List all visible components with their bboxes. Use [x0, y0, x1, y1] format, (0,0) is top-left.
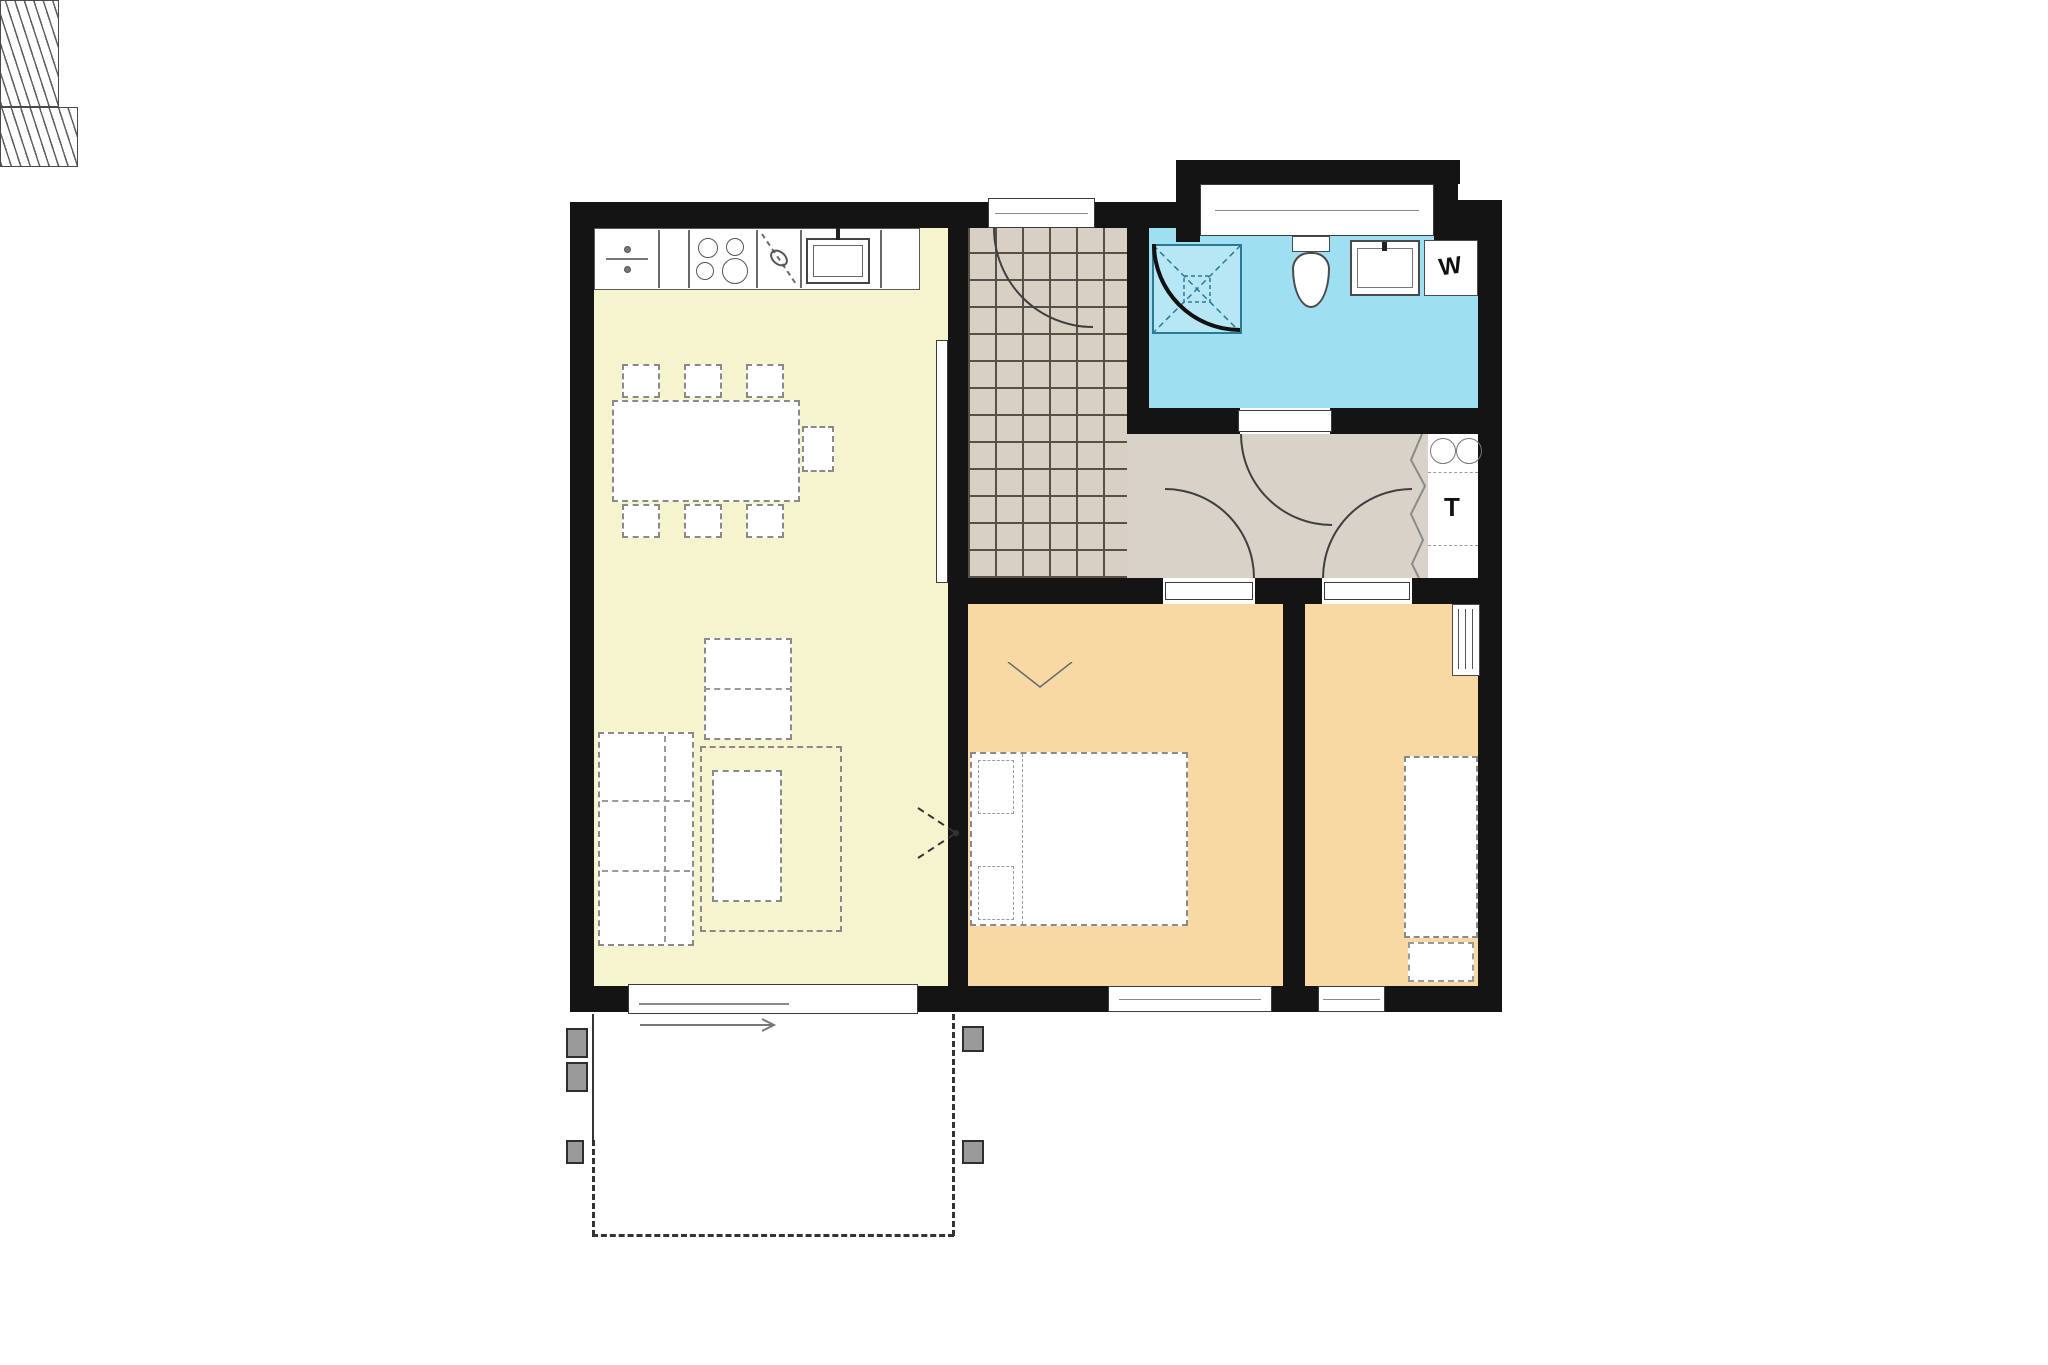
single-bed-nightstand: [1408, 942, 1474, 982]
kitchen-counter-divider-1: [658, 230, 660, 288]
wall-bottom-c: [1272, 986, 1318, 1012]
washing-machine: W: [1424, 240, 1478, 296]
terrace-post-4: [962, 1026, 984, 1052]
terrace-edge-left-solid: [592, 1014, 594, 1140]
wall-top-right-corner: [1434, 200, 1502, 242]
bedroom-1-wardrobe: [0, 107, 78, 167]
dishwasher-dot-bottom: [624, 266, 631, 273]
cooktop-burner-2: [726, 238, 744, 256]
dining-chair-3: [746, 364, 784, 398]
dining-chair-7: [802, 426, 834, 472]
bedrooms-top-wall-a: [948, 578, 1163, 604]
coffee-table: [712, 770, 782, 902]
wall-bottom-b: [918, 986, 1108, 1012]
sliding-door-direction-arrow: [640, 1018, 780, 1032]
bedroom-2-radiator: [1452, 604, 1480, 676]
radiator-line-1: [1458, 609, 1459, 669]
dishwasher-dot-top: [624, 246, 631, 253]
wall-top-a: [570, 202, 990, 228]
terrace-post-2: [566, 1062, 588, 1092]
double-bed-headboard-line: [1022, 754, 1023, 924]
terrace-edge-right: [952, 1014, 955, 1236]
bay-window: [1200, 184, 1434, 236]
bedrooms-top-wall-c: [1412, 578, 1502, 604]
wall-bottom-a: [570, 986, 628, 1012]
terrace-post-3: [566, 1140, 584, 1164]
kitchen-faucet-icon: [758, 230, 800, 288]
terrace-post-5: [962, 1140, 984, 1164]
technical-divider-1: [1428, 472, 1478, 473]
floor-plan: W T: [0, 0, 2048, 1365]
kitchen-counter-divider-4: [800, 230, 802, 288]
side-table-line: [704, 688, 792, 690]
sofa-front-edge: [664, 736, 666, 942]
dining-chair-2: [684, 364, 722, 398]
terrace-post-1: [566, 1028, 588, 1058]
bathroom-door-leaf: [1238, 410, 1332, 432]
kitchen-sink-tap: [836, 228, 840, 240]
entry-living-wall: [948, 228, 968, 583]
dining-chair-4: [622, 504, 660, 538]
radiator-line-2: [1465, 609, 1466, 669]
dining-chair-6: [746, 504, 784, 538]
sliding-terrace-door: [628, 984, 918, 1014]
wall-left: [570, 202, 594, 1012]
sofa-cushion-line-2: [602, 870, 690, 872]
washing-machine-label: W: [1437, 252, 1463, 283]
bathroom-wall-left: [1127, 228, 1149, 420]
bathroom-sink-tap: [1382, 242, 1387, 251]
bathroom-wall-bottom-a: [1127, 408, 1240, 434]
kitchen-counter-divider-5: [880, 230, 882, 288]
radiator-line-3: [1472, 609, 1473, 669]
bathroom-wall-bottom-b: [1330, 408, 1480, 434]
terrace-edge-bottom: [592, 1234, 954, 1237]
technical-divider-2: [1428, 545, 1478, 546]
bathroom-sink-basin: [1357, 248, 1413, 288]
double-bed-pillow-2: [978, 866, 1014, 920]
wall-right: [1478, 202, 1502, 1012]
bedroom-1-window-mullion: [1119, 999, 1262, 1000]
bedroom-1-wardrobe-door-mark: [1006, 662, 1074, 690]
entrance-door-line: [995, 213, 1087, 214]
sliding-door-leaf-line: [639, 1003, 789, 1005]
kitchen-counter-divider-2: [688, 230, 690, 288]
double-bed-pillow-1: [978, 760, 1014, 814]
utility-circle-1: [1430, 438, 1456, 464]
utility-circle-2: [1456, 438, 1482, 464]
bifold-door: [1408, 434, 1430, 578]
bedrooms-top-wall-b: [1255, 578, 1322, 604]
pocket-door-leaf: [936, 340, 948, 583]
sofa-cushion-line-1: [602, 800, 690, 802]
technical-room-label: T: [1444, 492, 1460, 523]
kitchen-sink-basin: [813, 245, 863, 277]
terrace-edge-left-dashed: [592, 1140, 595, 1236]
bedroom-2-door-leaf: [1324, 582, 1410, 600]
bay-wall-left: [1176, 160, 1200, 242]
entrance-door-leaf: [988, 198, 1095, 228]
bedroom-1-window: [1108, 986, 1272, 1012]
dishwasher-icon: [606, 258, 648, 260]
dining-chair-5: [684, 504, 722, 538]
bay-wall-top: [1176, 160, 1460, 184]
entry-wardrobe: [0, 0, 59, 107]
cooktop-burner-4: [722, 258, 748, 284]
single-bed: [1404, 756, 1478, 938]
bedroom-1-door-leaf: [1165, 582, 1253, 600]
sofa: [598, 732, 694, 946]
bedroom1-bedroom2-wall: [1283, 604, 1305, 1012]
bedroom-2-window: [1318, 986, 1385, 1012]
wall-bottom-d: [1385, 986, 1502, 1012]
dining-table: [612, 400, 800, 502]
cooktop-burner-1: [698, 238, 718, 258]
cooktop-burner-3: [696, 262, 714, 280]
bedroom-2-window-mullion: [1323, 999, 1380, 1000]
dining-chair-1: [622, 364, 660, 398]
opening-arrow-marker: [914, 804, 960, 862]
bay-window-mullion: [1215, 210, 1419, 211]
toilet-tank: [1292, 236, 1330, 252]
